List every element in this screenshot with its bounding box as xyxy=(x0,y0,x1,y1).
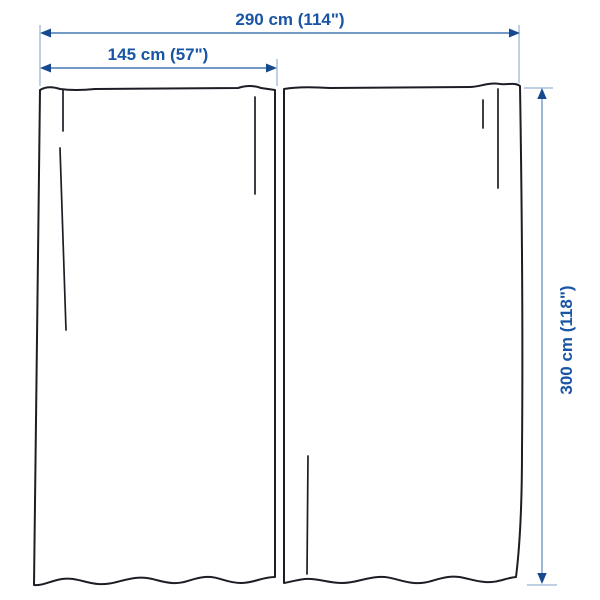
right-panel-outline xyxy=(284,84,522,584)
arrowhead-down-icon xyxy=(537,573,546,584)
left-curtain-panel xyxy=(34,86,275,585)
total-width-label: 290 cm (114") xyxy=(170,9,410,31)
arrowhead-right-icon xyxy=(266,64,277,73)
arrowhead-up-icon xyxy=(537,88,546,99)
diagram-canvas xyxy=(0,0,600,600)
height-label: 300 cm (118") xyxy=(556,240,578,440)
panel-width-label: 145 cm (57") xyxy=(58,44,258,66)
right-curtain-panel xyxy=(284,84,522,584)
left-panel-outline xyxy=(34,86,275,585)
arrowhead-left-icon xyxy=(40,29,51,38)
arrowhead-left-icon xyxy=(40,64,51,73)
left-panel-fold-line-long xyxy=(60,148,66,330)
right-panel-fold-line-bottom xyxy=(307,456,308,574)
height-dimension xyxy=(524,88,557,585)
curtain-dimension-diagram: 290 cm (114") 145 cm (57") 300 cm (118") xyxy=(0,0,600,600)
